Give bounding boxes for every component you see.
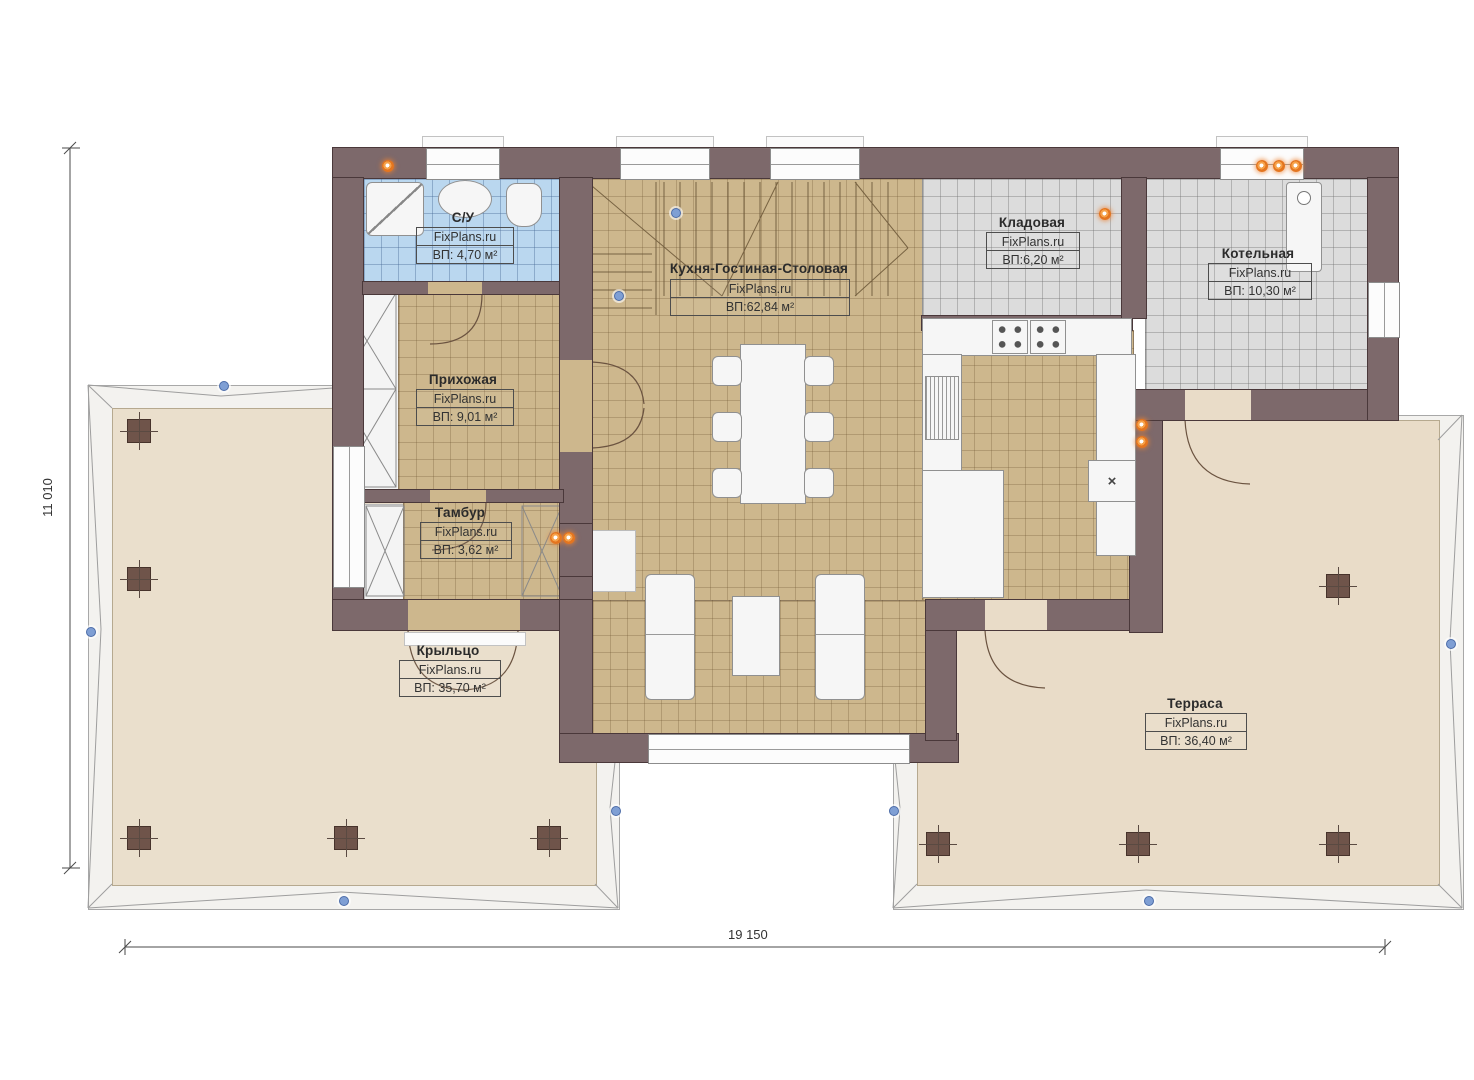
- reference-dot: [86, 627, 96, 637]
- reference-dot: [614, 291, 624, 301]
- sink-dishwasher-icon: [925, 376, 959, 440]
- room-name-porch: Крыльцо: [388, 643, 508, 658]
- terrace-post: [1326, 832, 1350, 856]
- dining-table: [740, 344, 806, 504]
- reference-dot: [1144, 896, 1154, 906]
- dimension-height: 11 010: [40, 478, 55, 517]
- room-area-terrace: ВП: 36,40 м²: [1146, 732, 1246, 749]
- terrace-post: [926, 832, 950, 856]
- wall-storage-boiler: [1122, 178, 1146, 318]
- room-info-vestibule: FixPlans.ru ВП: 3,62 м²: [420, 522, 512, 559]
- room-info-bathroom: FixPlans.ru ВП: 4,70 м²: [416, 227, 514, 264]
- reference-dot: [671, 208, 681, 218]
- window-hallway-west: [333, 446, 365, 588]
- lamp-icon: [1256, 160, 1268, 172]
- reference-dot: [611, 806, 621, 816]
- room-area-kitchen-living: ВП:62,84 м²: [671, 298, 849, 315]
- chair: [804, 412, 834, 442]
- porch-post: [127, 419, 151, 443]
- room-area-bathroom: ВП: 4,70 м²: [417, 246, 513, 263]
- window-bathroom: [426, 148, 500, 180]
- reference-dot: [339, 896, 349, 906]
- lamp-icon: [1273, 160, 1285, 172]
- room-info-boiler: FixPlans.ru ВП: 10,30 м²: [1208, 263, 1312, 300]
- room-name-hallway: Прихожая: [393, 372, 533, 387]
- watermark: FixPlans.ru: [671, 280, 849, 298]
- terrace-post: [1326, 574, 1350, 598]
- wall-stub-entry: [560, 524, 592, 576]
- watermark: FixPlans.ru: [417, 390, 513, 408]
- chair: [712, 468, 742, 498]
- window-boiler-east: [1368, 282, 1400, 338]
- room-area-storage: ВП:6,20 м²: [987, 251, 1079, 268]
- watermark: FixPlans.ru: [1146, 714, 1246, 732]
- kitchen-counter-southwest: [922, 470, 1004, 598]
- watermark: FixPlans.ru: [987, 233, 1079, 251]
- room-name-terrace: Терраса: [1135, 696, 1255, 711]
- watermark: FixPlans.ru: [1209, 264, 1311, 282]
- sofa: [815, 574, 865, 700]
- watermark: FixPlans.ru: [417, 228, 513, 246]
- room-info-porch: FixPlans.ru ВП: 35,70 м²: [399, 660, 501, 697]
- kitchen-marker-x: ×: [1088, 460, 1136, 502]
- window-stairs-right: [770, 148, 860, 180]
- entry-mat: [588, 530, 636, 592]
- door-opening-vestibule: [430, 490, 486, 502]
- reference-dot: [219, 381, 229, 391]
- lamp-icon: [563, 532, 575, 544]
- door-opening-boiler-terrace: [1185, 390, 1251, 420]
- chair: [712, 356, 742, 386]
- room-name-boiler: Котельная: [1188, 246, 1328, 261]
- lamp-icon: [1099, 208, 1111, 220]
- room-info-storage: FixPlans.ru ВП:6,20 м²: [986, 232, 1080, 269]
- chair: [804, 468, 834, 498]
- door-opening-terrace: [985, 600, 1047, 630]
- lamp-icon: [382, 160, 394, 172]
- reference-dot: [1446, 639, 1456, 649]
- room-name-bathroom: С/У: [403, 210, 523, 225]
- porch-post: [127, 826, 151, 850]
- door-opening-entrance: [408, 600, 520, 630]
- porch-post: [127, 567, 151, 591]
- door-opening-bathroom: [428, 282, 482, 294]
- door-opening-hall-living: [560, 360, 592, 452]
- lamp-icon: [550, 532, 562, 544]
- window-bay-south: [648, 734, 910, 764]
- watermark: FixPlans.ru: [400, 661, 500, 679]
- room-name-kitchen-living: Кухня-Гостиная-Столовая: [628, 261, 890, 276]
- porch-post: [334, 826, 358, 850]
- room-area-porch: ВП: 35,70 м²: [400, 679, 500, 696]
- stove-burners-icon: [1030, 320, 1066, 354]
- room-name-storage: Кладовая: [962, 215, 1102, 230]
- wall-boiler-south: [1130, 390, 1398, 420]
- room-area-boiler: ВП: 10,30 м²: [1209, 282, 1311, 299]
- wall-bay-left: [560, 600, 592, 740]
- room-area-hallway: ВП: 9,01 м²: [417, 408, 513, 425]
- x-symbol: ×: [1108, 473, 1117, 490]
- lamp-icon: [1136, 419, 1148, 431]
- room-info-kitchen-living: FixPlans.ru ВП:62,84 м²: [670, 279, 850, 316]
- lamp-icon: [1136, 436, 1148, 448]
- chair: [804, 356, 834, 386]
- sofa: [645, 574, 695, 700]
- room-area-vestibule: ВП: 3,62 м²: [421, 541, 511, 558]
- kitchen-island-east: [1096, 354, 1136, 556]
- coffee-table: [732, 596, 780, 676]
- floor-plan-canvas: × С/У FixPlans.ru ВП: 4,70 м² Прихожая: [0, 0, 1474, 1080]
- watermark: FixPlans.ru: [421, 523, 511, 541]
- room-info-terrace: FixPlans.ru ВП: 36,40 м²: [1145, 713, 1247, 750]
- stove-burners-icon: [992, 320, 1028, 354]
- dimension-width: 19 150: [728, 927, 768, 942]
- room-name-vestibule: Тамбур: [400, 505, 520, 520]
- window-stairs-left: [620, 148, 710, 180]
- terrace-post: [1126, 832, 1150, 856]
- lamp-icon: [1290, 160, 1302, 172]
- reference-dot: [889, 806, 899, 816]
- porch-post: [537, 826, 561, 850]
- chair: [712, 412, 742, 442]
- room-info-hallway: FixPlans.ru ВП: 9,01 м²: [416, 389, 514, 426]
